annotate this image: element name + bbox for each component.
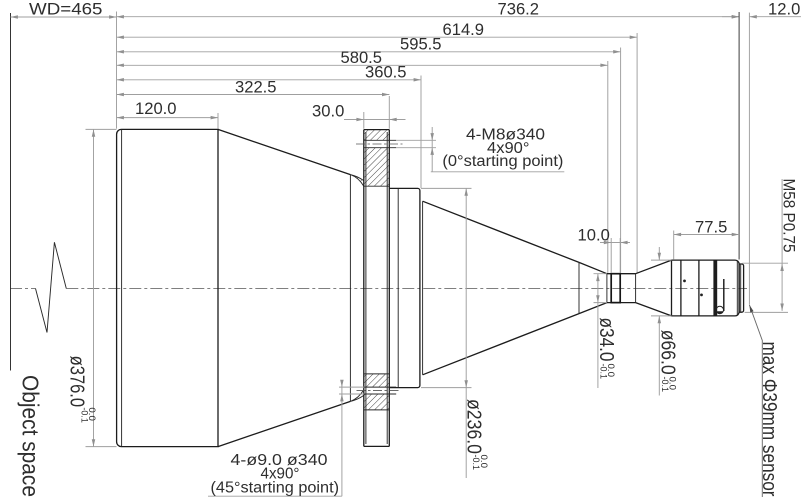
svg-text:322.5: 322.5 xyxy=(235,77,277,96)
svg-text:-0.1: -0.1 xyxy=(598,364,609,380)
svg-text:614.9: 614.9 xyxy=(443,20,485,39)
svg-text:M58 P0.75: M58 P0.75 xyxy=(780,179,799,253)
svg-text:-0.1: -0.1 xyxy=(79,407,90,423)
svg-text:736.2: 736.2 xyxy=(498,0,540,18)
svg-text:max Φ39mm sensor: max Φ39mm sensor xyxy=(758,342,780,497)
svg-text:-0.1: -0.1 xyxy=(659,377,670,393)
svg-text:Object space: Object space xyxy=(18,375,44,497)
svg-text:(0°starting point): (0°starting point) xyxy=(442,153,563,170)
svg-text:120.0: 120.0 xyxy=(135,99,177,118)
svg-text:WD=465: WD=465 xyxy=(29,0,103,18)
svg-text:ø34.0: ø34.0 xyxy=(595,318,618,362)
svg-text:10.0: 10.0 xyxy=(578,225,610,244)
svg-text:ø66.0: ø66.0 xyxy=(657,330,680,375)
svg-text:360.5: 360.5 xyxy=(365,63,407,82)
svg-text:-0.1: -0.1 xyxy=(470,455,481,471)
svg-text:12.0: 12.0 xyxy=(768,0,800,18)
svg-text:ø376.0: ø376.0 xyxy=(66,356,89,408)
svg-text:ø236.0: ø236.0 xyxy=(463,399,486,454)
svg-text:595.5: 595.5 xyxy=(400,35,442,54)
svg-text:(45°starting point): (45°starting point) xyxy=(211,479,340,496)
svg-text:30.0: 30.0 xyxy=(312,102,344,121)
svg-text:77.5: 77.5 xyxy=(695,217,727,236)
